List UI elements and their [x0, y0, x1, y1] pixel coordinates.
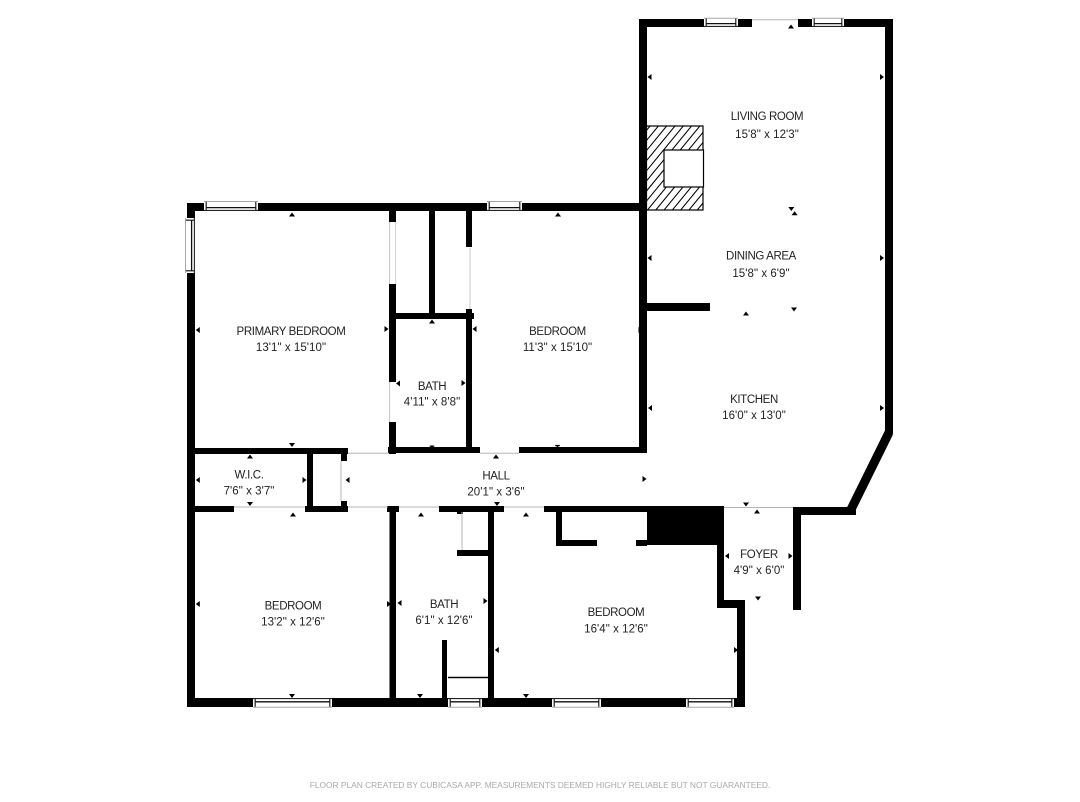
svg-text:4'11" x 8'8": 4'11" x 8'8" — [404, 397, 460, 409]
svg-text:16'0" x 13'0": 16'0" x 13'0" — [722, 410, 786, 422]
svg-text:FOYER: FOYER — [740, 549, 778, 561]
svg-text:6'1" x 12'6": 6'1" x 12'6" — [415, 615, 472, 627]
svg-text:HALL: HALL — [482, 471, 510, 483]
svg-text:15'8" x 6'9": 15'8" x 6'9" — [732, 268, 789, 280]
svg-text:20'1" x 3'6": 20'1" x 3'6" — [467, 487, 524, 499]
svg-text:BEDROOM: BEDROOM — [529, 326, 586, 338]
svg-text:13'1" x 15'10": 13'1" x 15'10" — [256, 342, 326, 354]
svg-text:LIVING ROOM: LIVING ROOM — [731, 111, 804, 123]
svg-text:BATH: BATH — [418, 381, 446, 393]
svg-text:11'3" x 15'10": 11'3" x 15'10" — [523, 342, 592, 354]
svg-text:KITCHEN: KITCHEN — [730, 394, 778, 406]
svg-text:DINING AREA: DINING AREA — [726, 251, 797, 263]
svg-text:7'6" x 3'7": 7'6" x 3'7" — [224, 486, 275, 498]
svg-text:BEDROOM: BEDROOM — [265, 601, 322, 613]
svg-text:16'4" x 12'6": 16'4" x 12'6" — [584, 624, 648, 636]
svg-text:4'9" x 6'0": 4'9" x 6'0" — [734, 565, 785, 577]
svg-text:FLOOR PLAN CREATED BY CUBICASA: FLOOR PLAN CREATED BY CUBICASA APP. MEAS… — [310, 780, 771, 790]
svg-text:W.I.C.: W.I.C. — [234, 470, 263, 482]
svg-text:BATH: BATH — [430, 599, 458, 611]
svg-text:15'8" x 12'3": 15'8" x 12'3" — [735, 129, 799, 141]
svg-text:BEDROOM: BEDROOM — [588, 607, 645, 619]
svg-text:PRIMARY BEDROOM: PRIMARY BEDROOM — [237, 326, 346, 338]
svg-text:13'2" x 12'6": 13'2" x 12'6" — [261, 617, 325, 629]
